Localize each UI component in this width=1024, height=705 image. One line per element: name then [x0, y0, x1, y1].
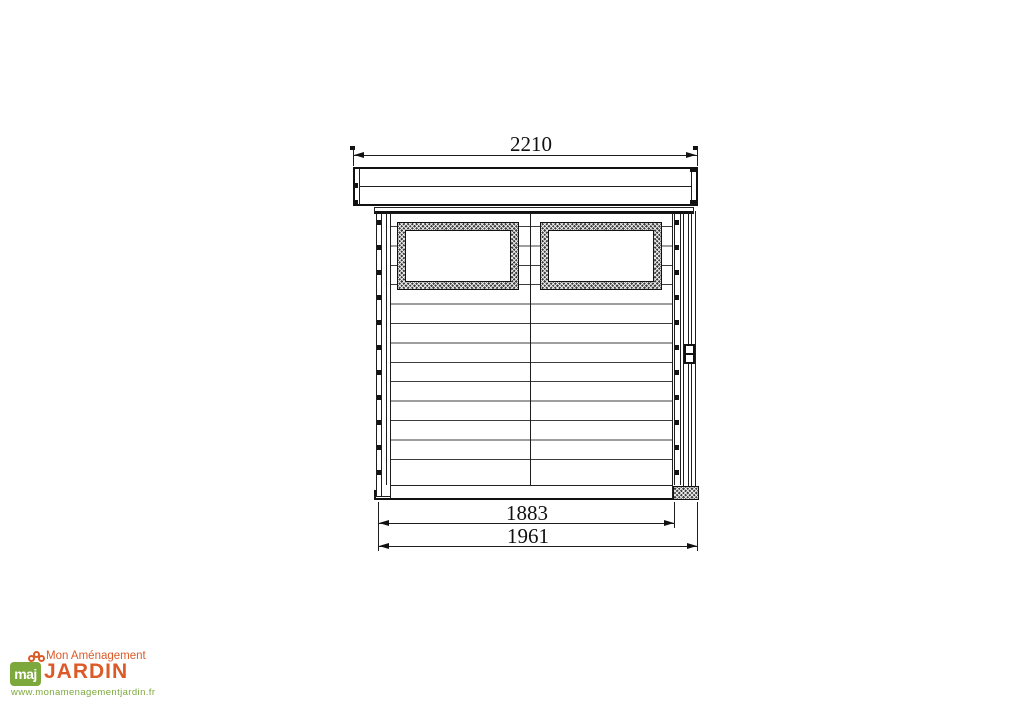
extension-line	[697, 147, 698, 166]
arrow-left-icon	[354, 152, 364, 158]
roof-mid-line	[359, 186, 691, 187]
roof-cap-tick	[690, 168, 696, 172]
extension-line	[674, 502, 675, 528]
arrow-right-icon	[664, 520, 674, 526]
foundation-block	[673, 486, 699, 500]
floor-beam	[390, 485, 673, 500]
arrow-left-icon	[379, 520, 389, 526]
logo-monogram: maj	[10, 662, 41, 686]
dimension-top-label: 2210	[510, 134, 552, 155]
wall-center-joint-line	[530, 213, 531, 499]
arrow-left-icon	[379, 543, 389, 549]
frame-line	[695, 211, 696, 487]
dimension-outer-label: 1961	[507, 526, 549, 547]
brand-name-main: JARDIN	[44, 660, 128, 684]
post-line	[386, 213, 387, 485]
website-url: www.monamenagementjardin.fr	[11, 687, 155, 698]
roof-cap-tick	[353, 183, 358, 188]
dimension-line	[379, 546, 697, 547]
extension-line	[697, 502, 698, 551]
door-handle	[684, 344, 695, 364]
window-left	[397, 222, 519, 290]
window-left-glass	[405, 230, 511, 282]
roof-cap-tick	[690, 200, 696, 204]
door-handle-latch	[686, 353, 693, 355]
dimension-inner-label: 1883	[506, 503, 548, 524]
base-step	[374, 490, 391, 500]
window-right	[540, 222, 662, 290]
arrow-right-icon	[686, 152, 696, 158]
product-image-page: 2210	[0, 0, 1024, 705]
dimension-line	[354, 155, 697, 156]
log-end-markers	[377, 220, 381, 478]
window-right-glass	[548, 230, 654, 282]
frame-line	[680, 213, 681, 485]
arrow-right-icon	[687, 543, 697, 549]
base-step-line	[374, 496, 391, 497]
post-line	[381, 213, 382, 497]
log-end-markers	[675, 220, 679, 478]
roof-cap-tick	[353, 200, 358, 204]
